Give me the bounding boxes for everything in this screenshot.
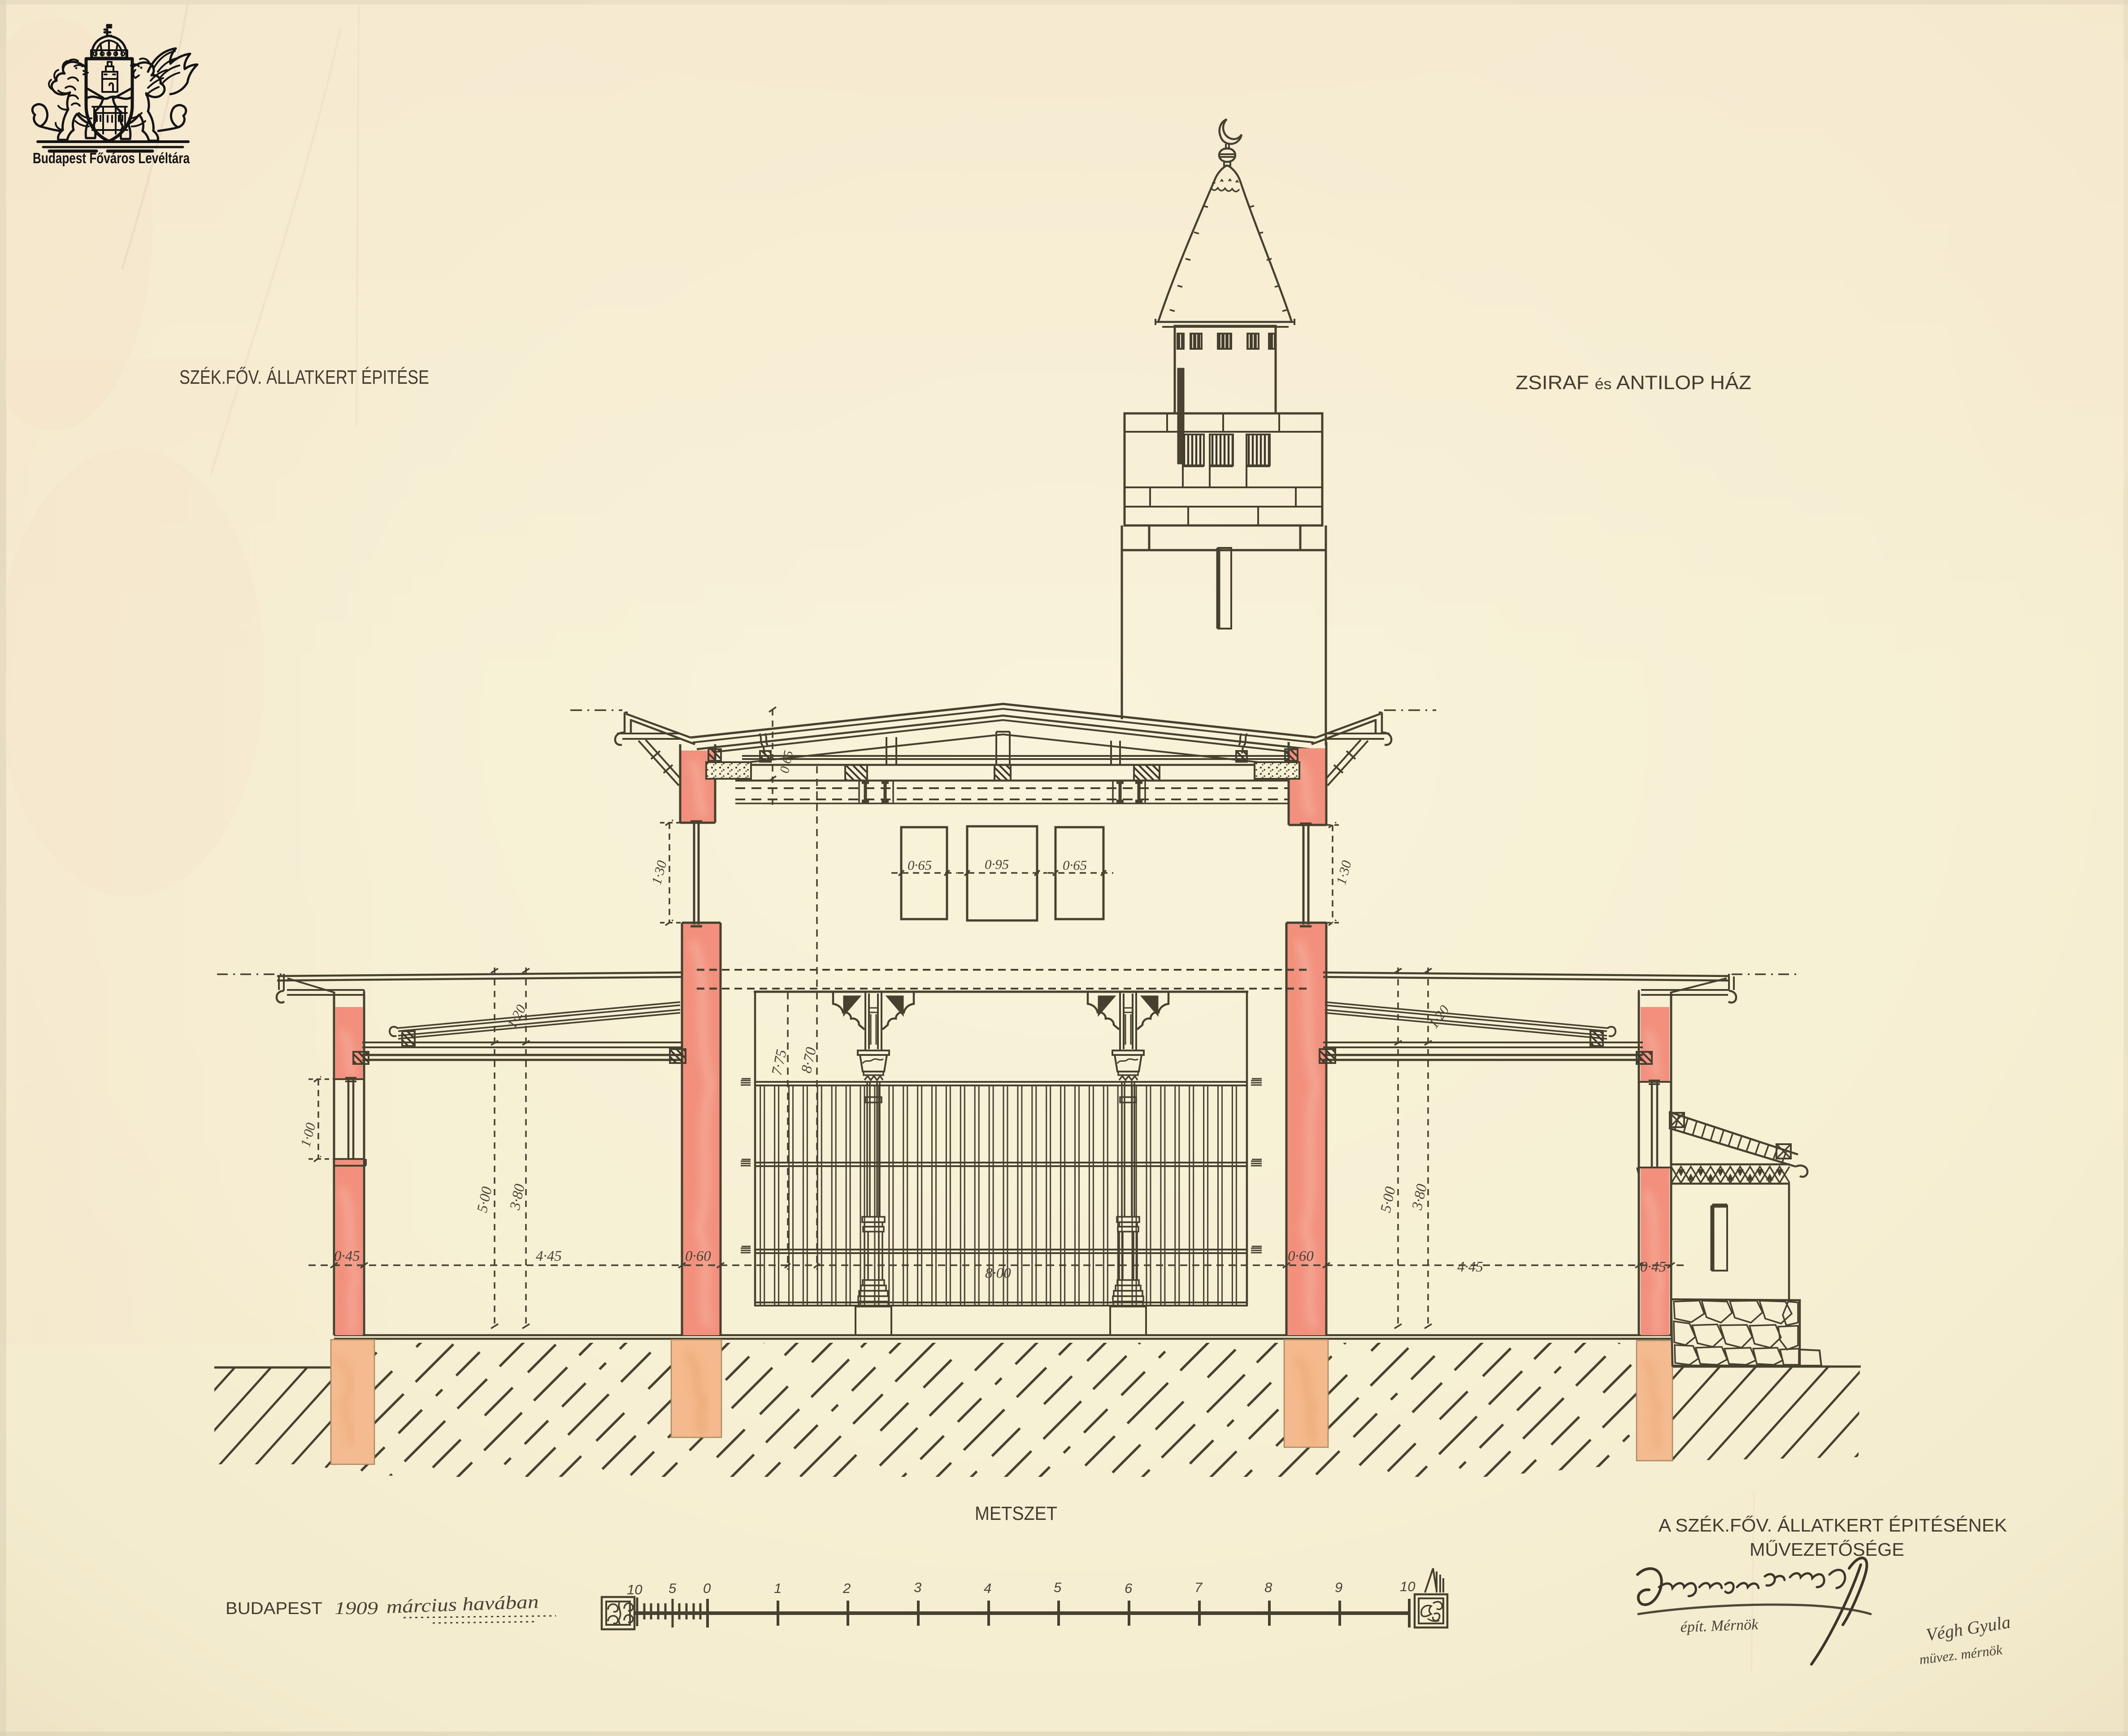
svg-text:4·45: 4·45 — [1457, 1259, 1483, 1275]
svg-text:Budapest Főváros Levéltára: Budapest Főváros Levéltára — [33, 150, 190, 166]
svg-text:A SZÉK.FŐV. ÁLLATKERT ÉPITÉSÉN: A SZÉK.FŐV. ÁLLATKERT ÉPITÉSÉNEK — [1659, 1515, 2007, 1536]
svg-text:0·65: 0·65 — [1063, 857, 1087, 873]
svg-text:10: 10 — [627, 1582, 642, 1597]
svg-text:épít. Mérnök: épít. Mérnök — [1680, 1616, 1759, 1636]
svg-text:0·45: 0·45 — [334, 1248, 360, 1264]
svg-text:1909: 1909 — [334, 1598, 378, 1618]
svg-text:1: 1 — [774, 1580, 782, 1596]
svg-text:SZÉK.FŐV. ÁLLATKERT ÉPITÉSE: SZÉK.FŐV. ÁLLATKERT ÉPITÉSE — [179, 366, 429, 388]
svg-text:6: 6 — [1125, 1580, 1133, 1596]
svg-text:0·60: 0·60 — [685, 1248, 711, 1264]
svg-text:9: 9 — [1335, 1580, 1342, 1595]
svg-text:MŰVEZETŐSÉGE: MŰVEZETŐSÉGE — [1750, 1539, 1904, 1560]
svg-text:0·45: 0·45 — [1640, 1259, 1666, 1275]
svg-text:2: 2 — [843, 1580, 851, 1596]
svg-text:ZSIRAF és ANTILOP HÁZ: ZSIRAF és ANTILOP HÁZ — [1516, 372, 1751, 394]
svg-text:0·95: 0·95 — [985, 856, 1009, 872]
svg-text:BUDAPEST: BUDAPEST — [226, 1599, 322, 1618]
svg-text:7: 7 — [1194, 1580, 1203, 1595]
svg-text:4·45: 4·45 — [536, 1248, 562, 1264]
svg-text:0·60: 0·60 — [1288, 1248, 1314, 1264]
svg-text:0·65: 0·65 — [908, 857, 932, 873]
svg-text:5: 5 — [669, 1580, 677, 1596]
svg-text:3: 3 — [914, 1580, 921, 1595]
svg-text:4: 4 — [984, 1580, 991, 1596]
svg-text:8·00: 8·00 — [985, 1265, 1011, 1281]
svg-text:METSZET: METSZET — [975, 1503, 1057, 1524]
svg-text:10: 10 — [1400, 1579, 1415, 1594]
svg-text:0: 0 — [703, 1580, 711, 1596]
svg-text:5: 5 — [1054, 1580, 1062, 1595]
svg-text:8: 8 — [1264, 1580, 1272, 1595]
